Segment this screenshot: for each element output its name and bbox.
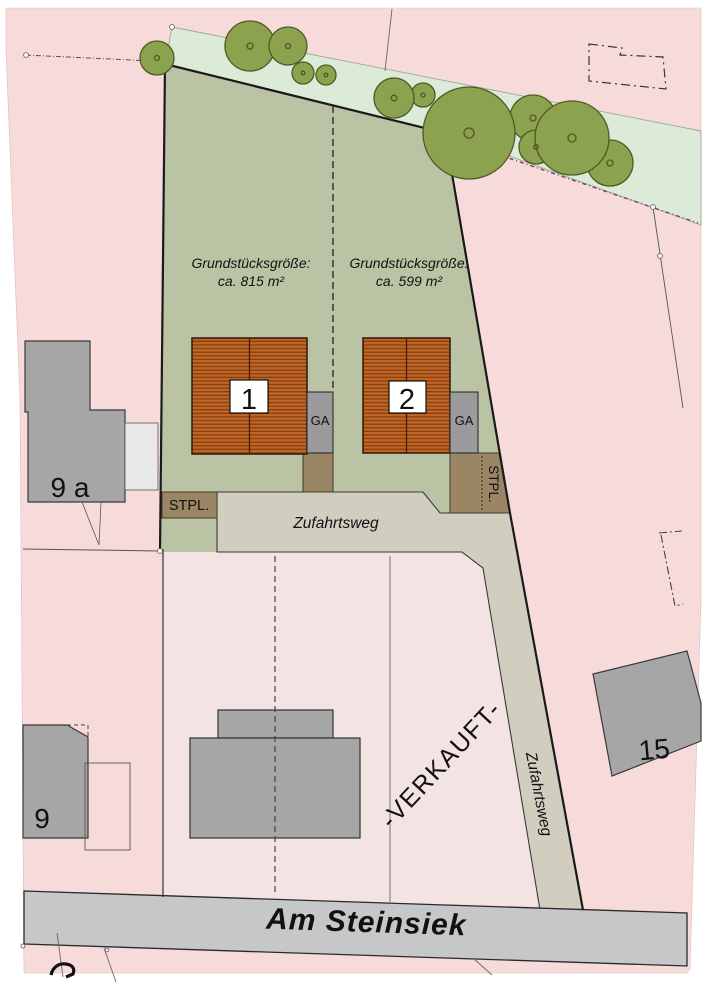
plot-1-size-value: ca. 815 m² [218, 273, 285, 289]
neighbor-house-15-label: 15 [637, 733, 671, 767]
parking-middle-area [303, 453, 333, 492]
parking-right-label: STPL. [486, 465, 501, 503]
tree-icon [411, 83, 435, 107]
tree-icon [423, 87, 515, 179]
house-2-number: 2 [399, 384, 415, 416]
site-plan-page: Grundstücksgröße: ca. 815 m² Grundstücks… [0, 0, 707, 1000]
plot-2-size-value: ca. 599 m² [376, 273, 443, 289]
plot-2-size-label: Grundstücksgröße: [349, 255, 468, 271]
access-road-label: Zufahrtsweg [292, 515, 379, 532]
plot-1-size-label: Grundstücksgröße: [191, 255, 310, 271]
tree-icon [269, 27, 307, 65]
neighbor-building-9a-annex [125, 423, 158, 490]
neighbor-building-9 [23, 725, 88, 838]
tree-icon [292, 62, 314, 84]
garage-2-label: GA [455, 413, 474, 428]
neighbor-house-9-label: 9 [34, 803, 50, 834]
parking-left-label: STPL. [169, 498, 209, 514]
sold-plot-building-upper [218, 710, 333, 738]
neighbor-house-9a-label: 9 a [51, 472, 90, 503]
tree-icon [316, 65, 336, 85]
tree-icon [225, 21, 275, 71]
tree-icon [374, 78, 414, 118]
site-plan-canvas: Grundstücksgröße: ca. 815 m² Grundstücks… [0, 0, 707, 1000]
street-name: Am Steinsiek [265, 903, 468, 943]
tree-icon [535, 101, 609, 175]
tree-icon [140, 41, 174, 75]
garage-1-label: GA [311, 413, 330, 428]
house-1-number: 1 [241, 384, 257, 416]
